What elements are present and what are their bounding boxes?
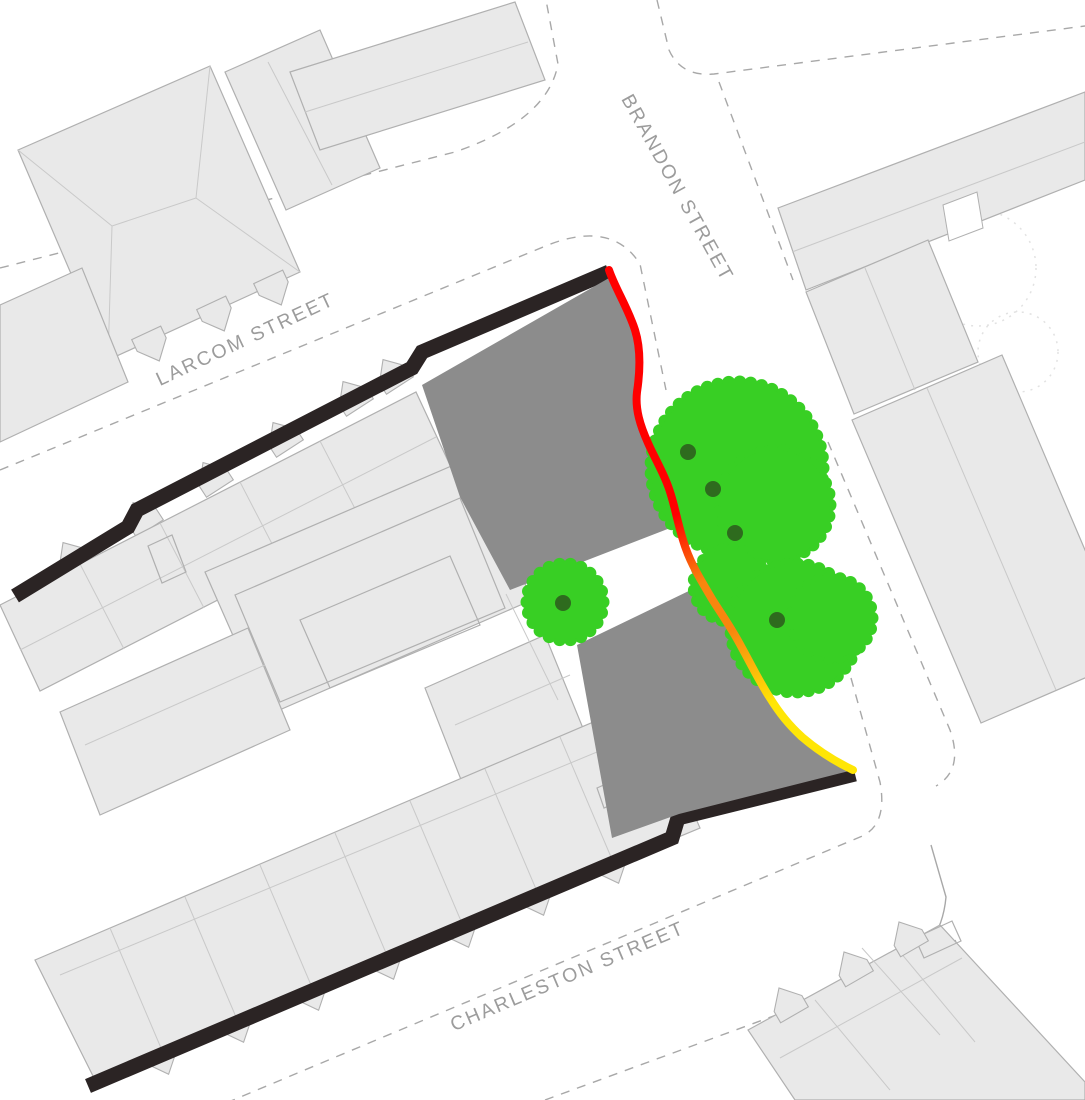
- street-label-charleston: CHARLESTON STREET: [447, 917, 688, 1036]
- site-plan-page: LARCOM STREET BRANDON STREET CHARLESTON …: [0, 0, 1085, 1100]
- tree-trunk-dot: [555, 595, 571, 611]
- context-buildings-southeast: [748, 914, 1085, 1100]
- context-building: [290, 2, 545, 150]
- brandon-street-east-edge: [719, 82, 793, 280]
- context-building: [852, 355, 1085, 723]
- top-street-edge: [657, 0, 1085, 74]
- tree-trunk-dot: [705, 481, 721, 497]
- tree-trunk-dot: [727, 525, 743, 541]
- tree-trunk-dot: [769, 612, 785, 628]
- tree-trunk-dot: [680, 444, 696, 460]
- site-plan-map: LARCOM STREET BRANDON STREET CHARLESTON …: [0, 0, 1085, 1100]
